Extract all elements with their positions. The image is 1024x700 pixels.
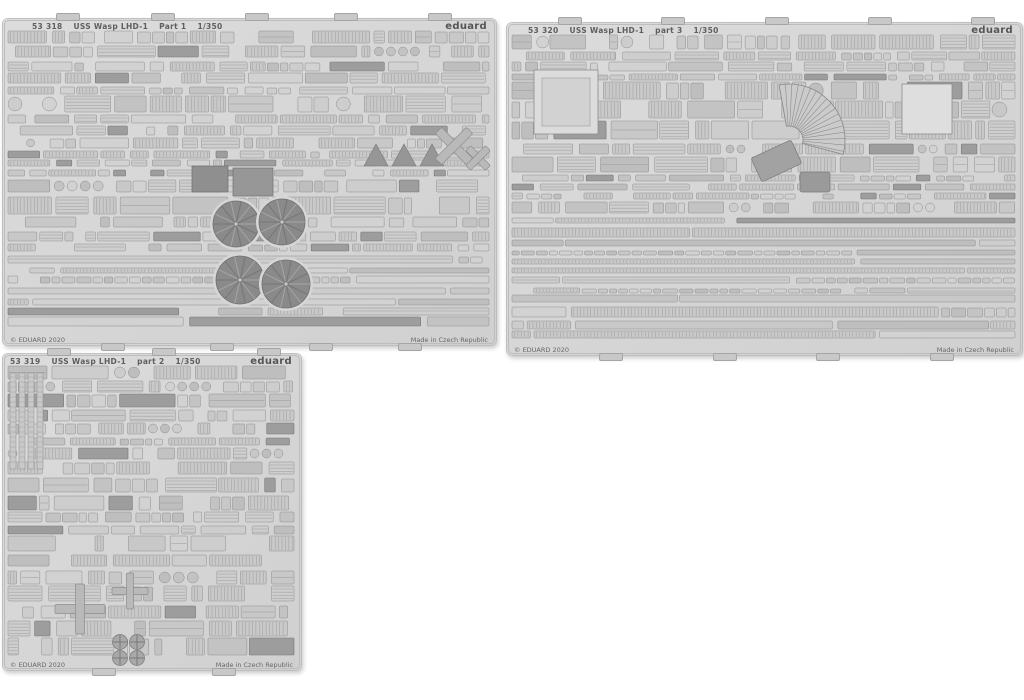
fret-tab xyxy=(558,17,582,25)
sheet-scale: 1/350 xyxy=(694,26,719,35)
fret-tab xyxy=(56,13,80,21)
sheet-part-number: part 3 xyxy=(655,26,682,35)
eduard-logo: eduard xyxy=(250,356,292,367)
sheet-scale: 1/350 xyxy=(197,22,222,31)
fret-tab xyxy=(816,353,840,361)
sheet-scale: 1/350 xyxy=(176,357,201,366)
sheet-part-number: Part 1 xyxy=(159,22,186,31)
sheet-code: 53 319 xyxy=(10,357,41,366)
fret-tab xyxy=(398,343,422,351)
sheet-part-number: part 2 xyxy=(137,357,164,366)
sheet-label: 53 319 USS Wasp LHD-1 part 2 1/350 xyxy=(10,357,201,366)
fret-tab xyxy=(151,13,175,21)
made-in-text: Made in Czech Republic xyxy=(411,336,488,344)
eduard-logo: eduard xyxy=(445,21,487,32)
sheet-label: 53 320 USS Wasp LHD-1 part 3 1/350 xyxy=(528,26,719,35)
fret-tab xyxy=(868,17,892,25)
sheet-kit-name: USS Wasp LHD-1 xyxy=(74,22,149,31)
sheet-code: 53 318 xyxy=(32,22,63,31)
fret-tab xyxy=(765,17,789,25)
copyright-text: © EDUARD 2020 xyxy=(10,336,65,344)
fret-tab xyxy=(309,343,333,351)
fret-tab xyxy=(101,343,125,351)
fret-tab xyxy=(245,13,269,21)
fret-tab xyxy=(428,13,452,21)
fret-tab xyxy=(210,343,234,351)
fret-tab xyxy=(713,353,737,361)
sheet-label: 53 318 USS Wasp LHD-1 Part 1 1/350 xyxy=(32,22,223,31)
sheet-kit-name: USS Wasp LHD-1 xyxy=(52,357,127,366)
sheet-kit-name: USS Wasp LHD-1 xyxy=(570,26,645,35)
fret-tab xyxy=(930,353,954,361)
copyright-text: © EDUARD 2020 xyxy=(10,661,65,669)
etched-parts-texture xyxy=(2,18,497,346)
fret-tab xyxy=(152,348,176,356)
copyright-text: © EDUARD 2020 xyxy=(514,346,569,354)
fret-tab xyxy=(599,353,623,361)
fret-tab xyxy=(971,17,995,25)
fret-tab xyxy=(47,348,71,356)
fret-tab xyxy=(92,668,116,676)
fret-tab xyxy=(257,348,281,356)
etched-parts-texture xyxy=(506,22,1023,356)
eduard-logo: eduard xyxy=(971,25,1013,36)
fret-tab xyxy=(212,668,236,676)
fret-tab xyxy=(661,17,685,25)
pe-fret-sheet-part3: 53 320 USS Wasp LHD-1 part 3 1/350 eduar… xyxy=(506,22,1023,356)
fret-tab xyxy=(334,13,358,21)
pe-fret-sheet-part1: 53 318 USS Wasp LHD-1 Part 1 1/350 eduar… xyxy=(2,18,497,346)
pe-fret-sheet-part2: 53 319 USS Wasp LHD-1 part 2 1/350 eduar… xyxy=(2,353,302,671)
product-photo-canvas: 53 318 USS Wasp LHD-1 Part 1 1/350 eduar… xyxy=(0,0,1024,700)
sheet-code: 53 320 xyxy=(528,26,559,35)
etched-parts-texture xyxy=(2,353,302,671)
